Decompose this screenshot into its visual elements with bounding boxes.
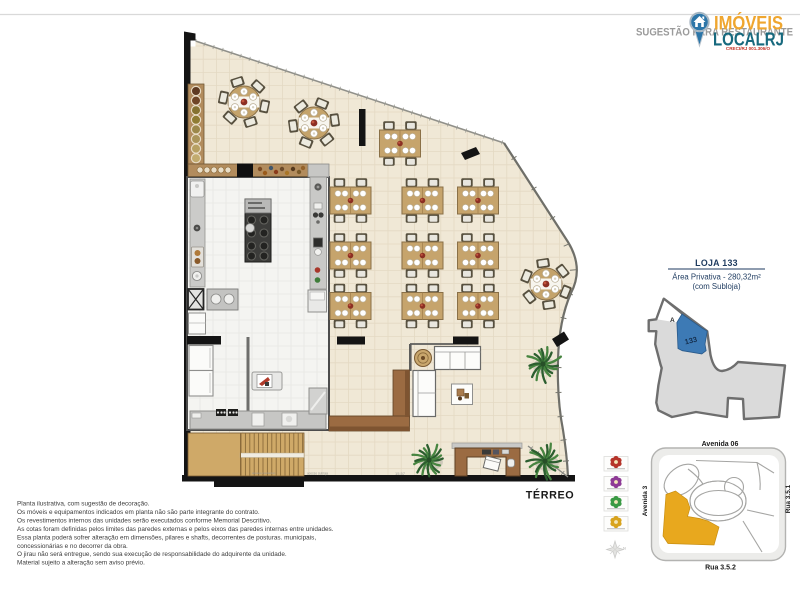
svg-text:Os revestimentos internos das: Os revestimentos internos das unidades s… xyxy=(17,517,272,524)
svg-text:Avenida 06: Avenida 06 xyxy=(702,441,739,448)
svg-text:TÉRREO: TÉRREO xyxy=(526,489,575,502)
svg-text:Rua 3.5.2: Rua 3.5.2 xyxy=(705,565,736,572)
svg-text:Rua 3.5.1: Rua 3.5.1 xyxy=(785,484,792,513)
svg-text:Planta ilustrativa, com sugest: Planta ilustrativa, com sugestão de deco… xyxy=(17,501,150,508)
svg-text:15.57: 15.57 xyxy=(395,471,406,476)
svg-text:As cotas foram definidas pelos: As cotas foram definidas pelos limites d… xyxy=(17,526,334,533)
svg-text:Material sujeito a alteração s: Material sujeito a alteração sem aviso p… xyxy=(17,560,145,567)
svg-text:N: N xyxy=(623,546,626,551)
svg-text:CRECI/RJ 001.306/O: CRECI/RJ 001.306/O xyxy=(726,46,771,51)
svg-text:O jirau não será entregue, sen: O jirau não será entregue, sendo sua exe… xyxy=(17,551,287,558)
svg-text:acesso mezanino: acesso mezanino xyxy=(252,471,276,475)
svg-text:concessionárias e no decorrer: concessionárias e no decorrer da obra. xyxy=(17,543,128,550)
svg-text:Os móveis e equipamentos indic: Os móveis e equipamentos indicados em pl… xyxy=(17,509,260,516)
svg-text:Avenida 3: Avenida 3 xyxy=(642,485,649,516)
svg-text:(com Subloja): (com Subloja) xyxy=(692,282,741,291)
svg-text:A: A xyxy=(670,317,675,324)
svg-text:LOJA 133: LOJA 133 xyxy=(695,258,738,268)
svg-text:Essa planta poderá sofrer alte: Essa planta poderá sofrer alteração em d… xyxy=(17,534,316,541)
svg-text:Área Privativa - 280,32m²: Área Privativa - 280,32m² xyxy=(672,273,761,282)
svg-text:acesso subloja: acesso subloja xyxy=(307,472,328,476)
